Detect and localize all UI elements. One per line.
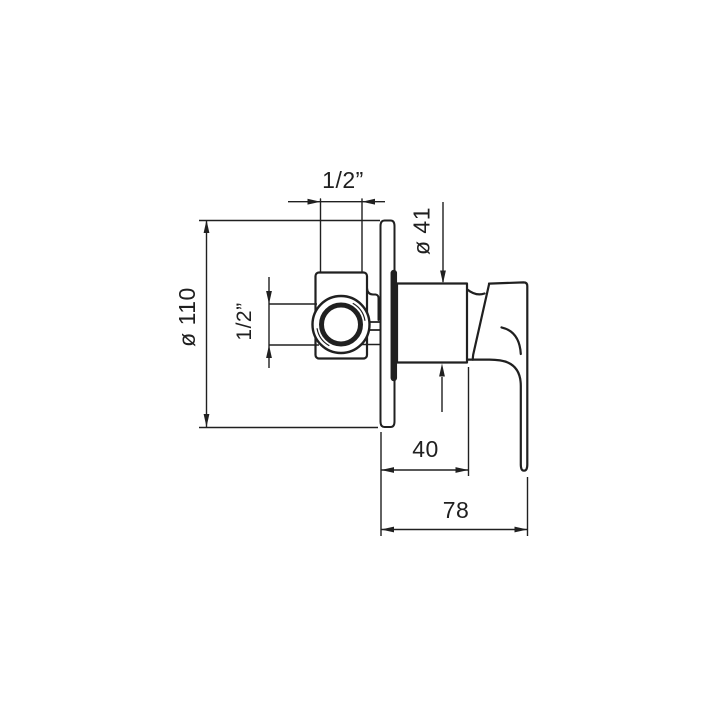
side-port-thread-label: 1/2” bbox=[233, 302, 256, 340]
overall-depth-label: 78 bbox=[443, 497, 470, 523]
body-depth-label: 40 bbox=[412, 436, 439, 462]
handle-inner-curve bbox=[502, 327, 521, 354]
arrowhead-right-icon bbox=[515, 527, 528, 533]
arrowhead-right-icon bbox=[308, 199, 321, 205]
arrowhead-up-icon bbox=[439, 364, 445, 377]
arrowhead-left-icon bbox=[381, 467, 394, 473]
arrowhead-down-icon bbox=[204, 414, 210, 427]
cartridge-housing bbox=[397, 284, 467, 363]
dimension-top-inlet-thread: 1/2” bbox=[288, 167, 385, 205]
dimension-side-port-thread: 1/2” bbox=[233, 277, 319, 368]
arrowhead-down-icon bbox=[266, 291, 272, 304]
inlet-pipe-lines bbox=[321, 199, 363, 272]
body-diameter-label: ø 41 bbox=[409, 207, 435, 255]
dimension-overall-depth: 78 bbox=[381, 477, 528, 536]
arrowhead-left-icon bbox=[362, 199, 375, 205]
top-inlet-thread-label: 1/2” bbox=[322, 167, 364, 193]
mixer-dimension-drawing: ø 110 1/2” 1/2” ø 41 bbox=[0, 0, 704, 704]
handle-outline bbox=[467, 282, 527, 470]
arrowhead-up-icon bbox=[204, 220, 210, 233]
technical-drawing-page: ø 110 1/2” 1/2” ø 41 bbox=[0, 0, 704, 704]
plate-diameter-label: ø 110 bbox=[174, 287, 200, 347]
arrowhead-right-icon bbox=[456, 467, 469, 473]
handle-neck-fillet bbox=[467, 290, 484, 295]
arrowhead-down-icon bbox=[440, 271, 446, 284]
side-port bbox=[313, 296, 370, 353]
arrowhead-left-icon bbox=[381, 527, 394, 533]
handle-lever bbox=[467, 282, 527, 470]
arrowhead-up-icon bbox=[266, 345, 272, 358]
